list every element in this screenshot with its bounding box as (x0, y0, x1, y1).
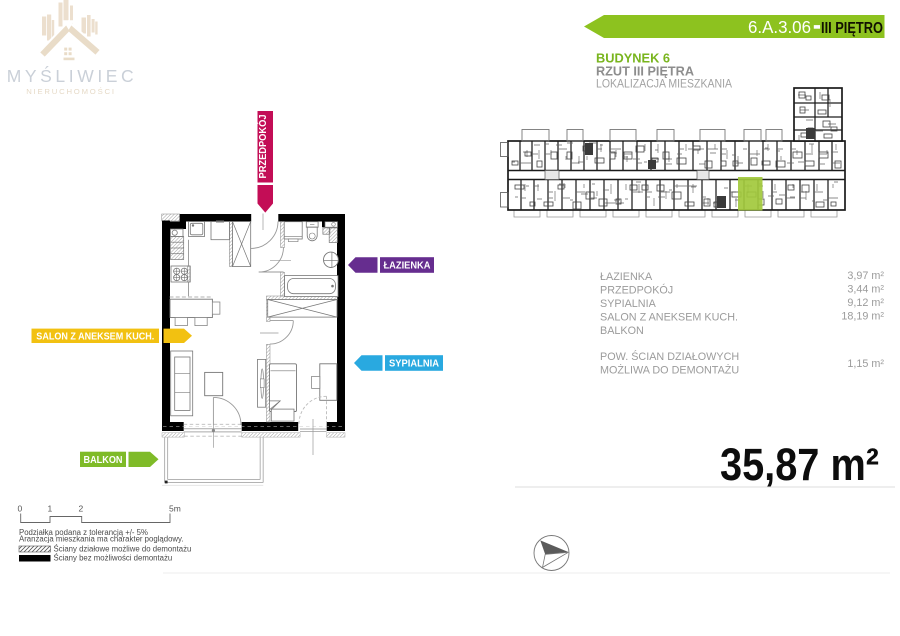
svg-text:1,15 m²: 1,15 m² (847, 358, 884, 370)
svg-text:BALKON: BALKON (600, 325, 644, 337)
svg-text:Ściany działowe możliwe do dem: Ściany działowe możliwe do demontażu (54, 544, 192, 553)
svg-text:MYŚLIWIEC: MYŚLIWIEC (7, 65, 138, 86)
svg-text:PRZEDPOKÓJ: PRZEDPOKÓJ (600, 284, 673, 297)
svg-text:MOŻLIWA DO DEMONTAŻU: MOŻLIWA DO DEMONTAŻU (600, 364, 739, 377)
svg-text:SYPIALNIA: SYPIALNIA (600, 298, 657, 310)
svg-text:PRZEDPOKÓJ: PRZEDPOKÓJ (256, 114, 269, 178)
svg-text:2: 2 (79, 504, 84, 514)
svg-text:3,97 m²: 3,97 m² (847, 270, 884, 282)
svg-text:POW. ŚCIAN DZIAŁOWYCH: POW. ŚCIAN DZIAŁOWYCH (600, 350, 739, 363)
svg-text:1: 1 (48, 504, 53, 514)
svg-text:0: 0 (18, 504, 23, 514)
svg-text:SALON Z ANEKSEM KUCH.: SALON Z ANEKSEM KUCH. (600, 312, 738, 324)
svg-text:Ściany bez możliwości demontaż: Ściany bez możliwości demontażu (54, 553, 173, 562)
svg-text:ŁAZIENKA: ŁAZIENKA (384, 260, 431, 272)
svg-text:SYPIALNIA: SYPIALNIA (389, 358, 439, 370)
svg-text:Aranżacja mieszkania ma charak: Aranżacja mieszkania ma charakter pogląd… (19, 535, 184, 544)
svg-text:LOKALIZACJA MIESZKANIA: LOKALIZACJA MIESZKANIA (596, 77, 732, 91)
svg-text:III PIĘTRO: III PIĘTRO (821, 20, 883, 37)
svg-text:18,19 m²: 18,19 m² (841, 311, 884, 323)
svg-text:9,12 m²: 9,12 m² (847, 297, 884, 309)
svg-text:35,87 m²: 35,87 m² (720, 439, 879, 490)
svg-text:BALKON: BALKON (84, 455, 123, 466)
svg-text:ŁAZIENKA: ŁAZIENKA (600, 271, 653, 283)
svg-text:SALON Z ANEKSEM KUCH.: SALON Z ANEKSEM KUCH. (36, 331, 154, 342)
svg-text:3,44 m²: 3,44 m² (847, 284, 884, 296)
svg-text:5m: 5m (169, 504, 181, 514)
svg-text:NIERUCHOMOŚCI: NIERUCHOMOŚCI (26, 87, 116, 96)
svg-text:6.A.3.06: 6.A.3.06 (748, 17, 811, 37)
